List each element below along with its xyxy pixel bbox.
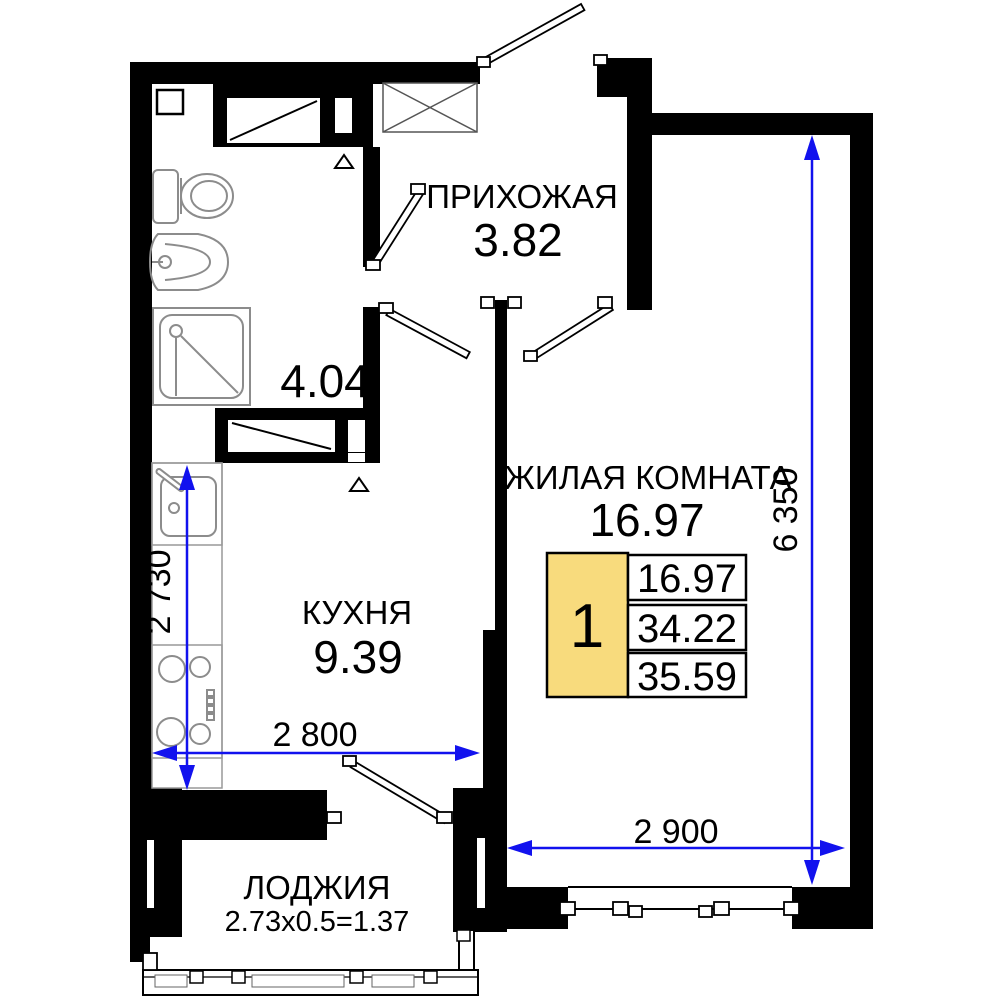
toilet-tank [153, 170, 178, 223]
dim-label-2900: 2 900 [633, 813, 718, 851]
cap-central-left [481, 297, 494, 308]
room-label-living: ЖИЛАЯ КОМНАТА [504, 459, 791, 496]
wall-bottom-left-seg [507, 887, 568, 929]
living-window-handle-1 [560, 902, 575, 915]
wall-living-top [652, 113, 873, 135]
dim-2900-arrow-left [507, 840, 532, 856]
shaft-slot-top [335, 98, 352, 133]
vent-triangle-top [335, 155, 353, 168]
living-window-handle-2 [613, 902, 628, 915]
window-slit-right-block [477, 838, 485, 908]
living-window-handle-5 [714, 902, 729, 915]
bathroom-sink [150, 234, 228, 290]
dim-6350-arrow-bottom [804, 860, 820, 885]
floor-plan: ПРИХОЖАЯ 3.82 4.04 ЖИЛАЯ КОМНАТА 16.97 К… [0, 0, 1000, 1000]
room-area-hallway: 3.82 [473, 214, 563, 266]
wall-right [850, 113, 873, 929]
kitchen-door-leaf [386, 309, 469, 358]
living-door-leaf [530, 304, 613, 360]
info-box: 1 16.97 34.22 35.59 [547, 553, 746, 699]
shower-drain [170, 325, 182, 337]
stove-knob-4 [207, 714, 214, 720]
shower [153, 308, 250, 405]
vent-triangle-bottom [350, 478, 368, 491]
room-area-loggia: 2.73x0.5=1.37 [225, 906, 410, 938]
loggia-mullion-2 [232, 971, 245, 983]
dim-label-6350: 6 350 [767, 467, 805, 552]
cap-kitchen-hinge [379, 303, 393, 313]
cap-bath-end [411, 184, 425, 194]
loggia-pane-3 [372, 975, 414, 987]
info-box-rooms-count: 1 [570, 592, 604, 661]
dim-label-2730: 2 730 [140, 549, 178, 634]
loggia-glazing [143, 930, 478, 995]
info-box-living-area: 16.97 [637, 557, 737, 601]
loggia-pane-1 [155, 975, 187, 987]
info-box-area-no-loggia: 34.22 [637, 607, 737, 651]
fixtures [150, 170, 250, 788]
stove-burner-4 [190, 724, 210, 744]
loggia-mullion-4 [424, 971, 437, 983]
entrance-door-leaf [482, 4, 584, 65]
window-slit-left-pier [147, 840, 154, 908]
cap-balcony-end [343, 756, 356, 766]
stove-knob-3 [207, 706, 214, 712]
living-window-handle-3 [629, 906, 642, 917]
cap-entrance-right [594, 55, 607, 65]
dim-6350-arrow-top [804, 135, 820, 160]
toilet [153, 170, 233, 223]
cap-bath-hinge [366, 260, 380, 270]
kitchen-sink-drain [169, 503, 179, 513]
room-label-kitchen: КУХНЯ [302, 594, 412, 631]
loggia-left-return [143, 953, 157, 970]
wall-loggia-left-pier [130, 788, 182, 937]
vent-square [157, 90, 183, 114]
loggia-mullion-1 [190, 971, 203, 983]
info-box-total-area: 35.59 [637, 655, 737, 699]
room-label-hallway: ПРИХОЖАЯ [426, 178, 618, 215]
floor-plan-svg: ПРИХОЖАЯ 3.82 4.04 ЖИЛАЯ КОМНАТА 16.97 К… [0, 0, 1000, 1000]
cap-entrance-left [477, 57, 490, 67]
room-area-kitchen: 9.39 [313, 631, 403, 683]
stove [157, 656, 214, 746]
loggia-mullion-3 [350, 971, 363, 983]
dim-2730-arrow-bottom [179, 765, 195, 790]
wall-bath-right-a [363, 147, 380, 267]
shower-line-diag [181, 336, 238, 393]
dim-2900-arrow-right [820, 840, 845, 856]
cap-loggia-wall-end [327, 812, 341, 823]
shaft-slot-bottom-b [348, 453, 365, 462]
wall-bottom-right-seg [792, 887, 873, 929]
stove-burner-1 [159, 656, 185, 682]
cap-central-right [508, 297, 521, 308]
dim-label-2800: 2 800 [272, 716, 357, 754]
dim-right-vertical [804, 135, 820, 885]
stove-knob-2 [207, 698, 214, 704]
living-window-handle-4 [699, 906, 712, 917]
dim-2800-arrow-right [455, 745, 480, 761]
stove-burner-3 [157, 718, 185, 746]
cap-balcony-hinge [437, 812, 452, 823]
stove-burner-2 [190, 657, 210, 677]
wall-central-thick [483, 630, 507, 790]
toilet-bowl-inner [191, 181, 227, 211]
loggia-right-mullion [457, 930, 470, 941]
room-area-bathroom: 4.04 [280, 355, 370, 407]
shaft-slot-bottom-a [348, 420, 365, 452]
stove-knob-1 [207, 690, 214, 696]
room-label-loggia: ЛОДЖИЯ [244, 869, 391, 906]
living-window-handle-6 [784, 902, 799, 915]
room-area-living: 16.97 [589, 494, 704, 546]
cap-living-end [524, 351, 537, 361]
wall-hall-living [627, 84, 652, 310]
wall-top [130, 62, 480, 84]
cap-living-hinge [598, 297, 612, 308]
living-room-window [560, 887, 799, 917]
balcony-door-leaf [351, 761, 448, 823]
loggia-pane-2 [252, 975, 344, 987]
